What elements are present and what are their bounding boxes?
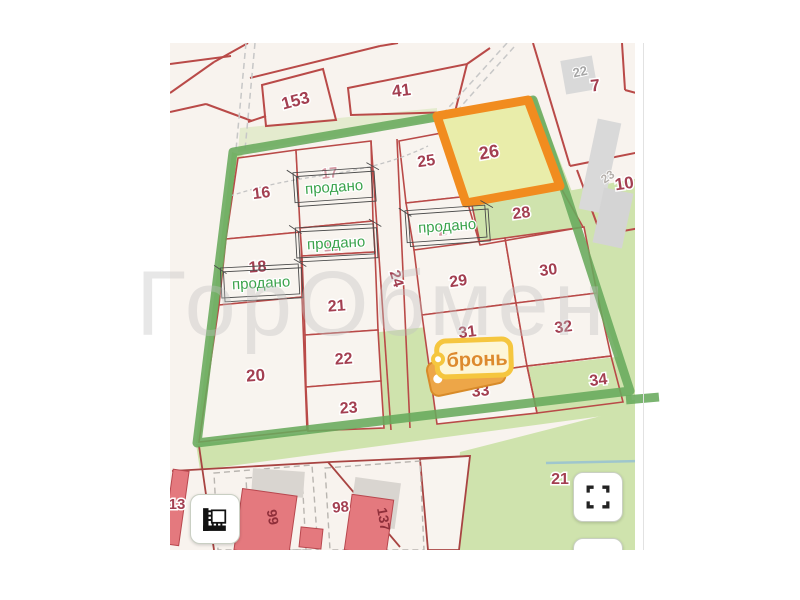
parcel-label-16: 16 (252, 184, 272, 203)
parcel-label-21-br: 21 (551, 471, 569, 488)
parcel-label-98: 98 (332, 498, 350, 516)
parcel-label-20: 20 (246, 365, 266, 385)
parcel-label-10: 10 (614, 173, 635, 194)
parcel-label-25: 25 (416, 152, 436, 171)
parcel-label-23: 23 (339, 399, 358, 417)
map-widget: 153 41 22 7 23 10 16 17 18 19 20 21 22 2… (0, 0, 800, 600)
parcel-label-7: 7 (589, 76, 601, 96)
parcel-label-153: 153 (279, 88, 311, 114)
zoom-control-button[interactable] (573, 538, 623, 550)
svg-text:продано: продано (307, 233, 366, 253)
parcel-label-26: 26 (477, 141, 500, 164)
map-canvas: 153 41 22 7 23 10 16 17 18 19 20 21 22 2… (170, 43, 635, 550)
map-edge-line (643, 43, 644, 550)
parcel-label-21: 21 (327, 297, 346, 315)
parcel-label-32: 32 (554, 318, 574, 337)
tag-hole-icon (433, 354, 443, 364)
parcel-label-13: 13 (170, 496, 185, 513)
parcel-label-30: 30 (539, 261, 559, 280)
building-label-99: 99 (264, 508, 282, 526)
cadastral-map[interactable]: 153 41 22 7 23 10 16 17 18 19 20 21 22 2… (170, 43, 635, 550)
measure-button[interactable] (190, 494, 240, 544)
parcel-label-22: 22 (334, 350, 353, 368)
svg-text:бронь: бронь (446, 348, 508, 372)
parcel-label-28: 28 (512, 204, 532, 223)
fullscreen-icon (586, 485, 610, 509)
svg-text:продано: продано (232, 273, 291, 293)
building-label-22: 22 (571, 63, 588, 81)
parcel-label-34: 34 (589, 371, 609, 390)
fullscreen-button[interactable] (573, 472, 623, 522)
parcel-label-41: 41 (391, 80, 412, 101)
ruler-area-icon (202, 506, 228, 532)
parcel-label-29: 29 (448, 272, 468, 291)
